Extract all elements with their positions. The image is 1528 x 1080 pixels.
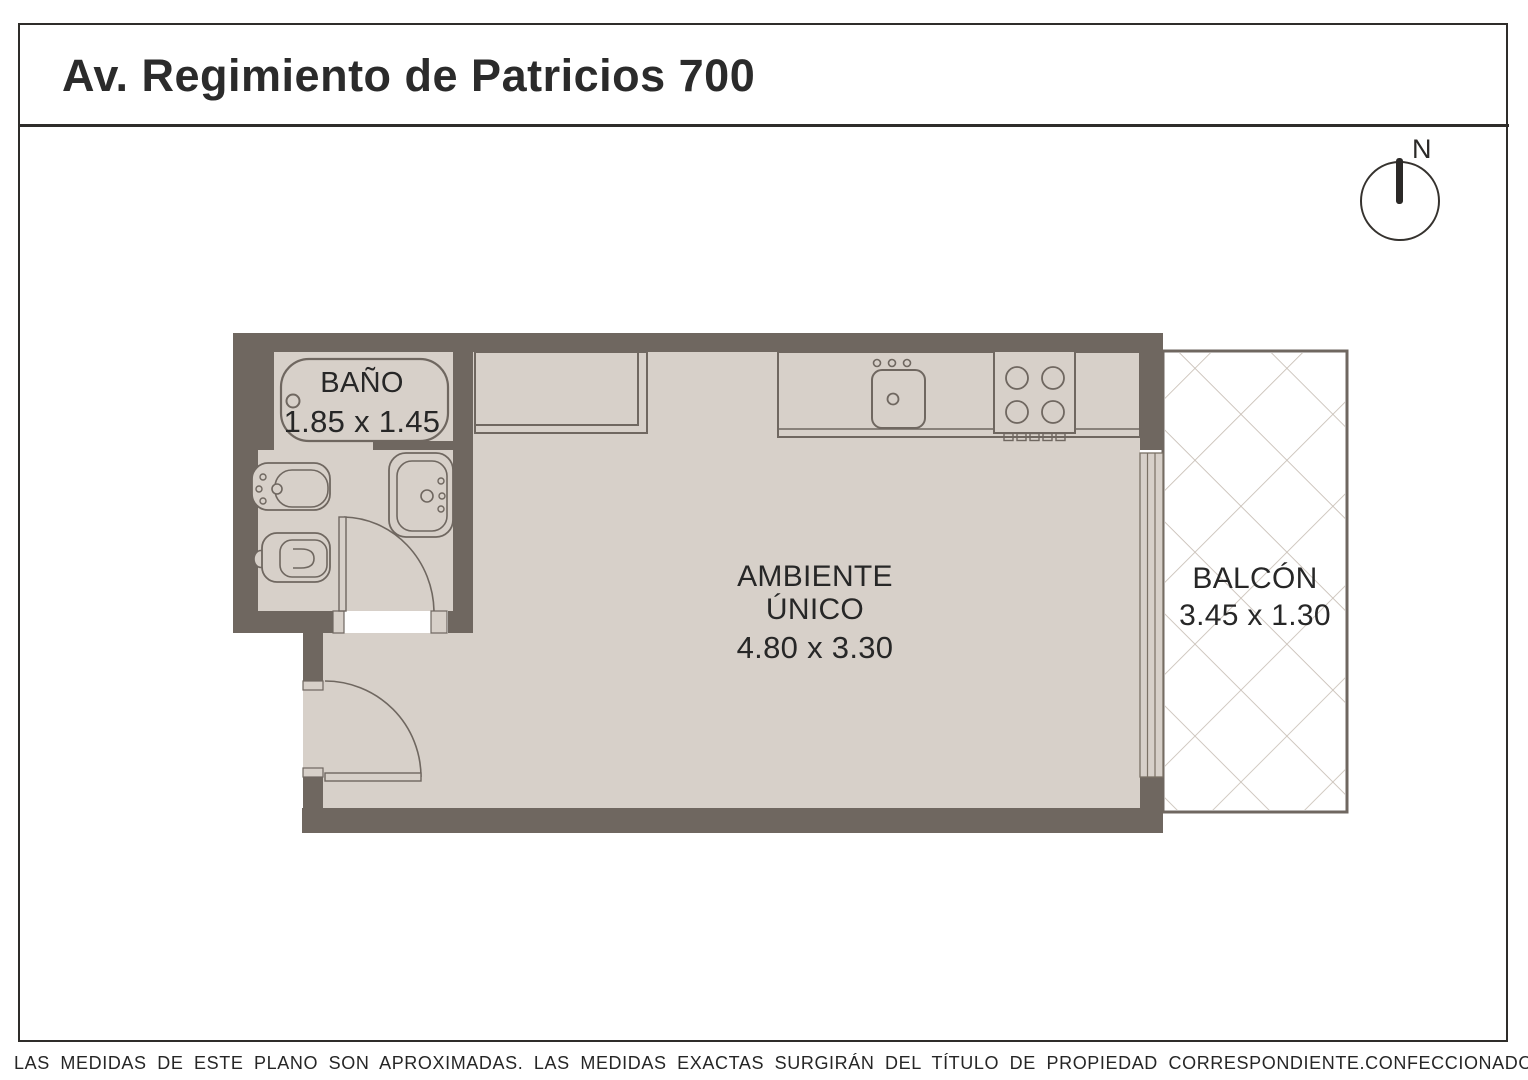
floor-plan-drawing	[0, 0, 1528, 1080]
bathroom-name: BAÑO	[278, 367, 446, 400]
bathroom-label: BAÑO 1.85 x 1.45	[278, 367, 446, 438]
sliding-window	[1140, 453, 1163, 777]
main-room-name: AMBIENTE ÚNICO	[695, 560, 935, 626]
balcony-dimensions: 3.45 x 1.30	[1163, 599, 1347, 632]
bathroom-sink	[389, 453, 453, 537]
main-room-dimensions: 4.80 x 3.30	[695, 631, 935, 664]
bathroom-dimensions: 1.85 x 1.45	[278, 405, 446, 438]
bidet	[252, 463, 330, 510]
toilet	[254, 533, 330, 582]
main-room-label: AMBIENTE ÚNICO 4.80 x 3.30	[695, 560, 935, 664]
floor-plan-page: Av. Regimiento de Patricios 700 N	[0, 0, 1528, 1080]
footer-credit: CONFECCIONADO POR ESTUDIO NARTEX	[1365, 1053, 1528, 1074]
footer: LAS MEDIDAS DE ESTE PLANO SON APROXIMADA…	[14, 1053, 1520, 1074]
balcony-name: BALCÓN	[1163, 561, 1347, 597]
stove	[994, 351, 1075, 441]
balcony-label: BALCÓN 3.45 x 1.30	[1163, 561, 1347, 632]
kitchen-sink	[872, 360, 925, 429]
footer-disclaimer: LAS MEDIDAS DE ESTE PLANO SON APROXIMADA…	[14, 1053, 1365, 1074]
